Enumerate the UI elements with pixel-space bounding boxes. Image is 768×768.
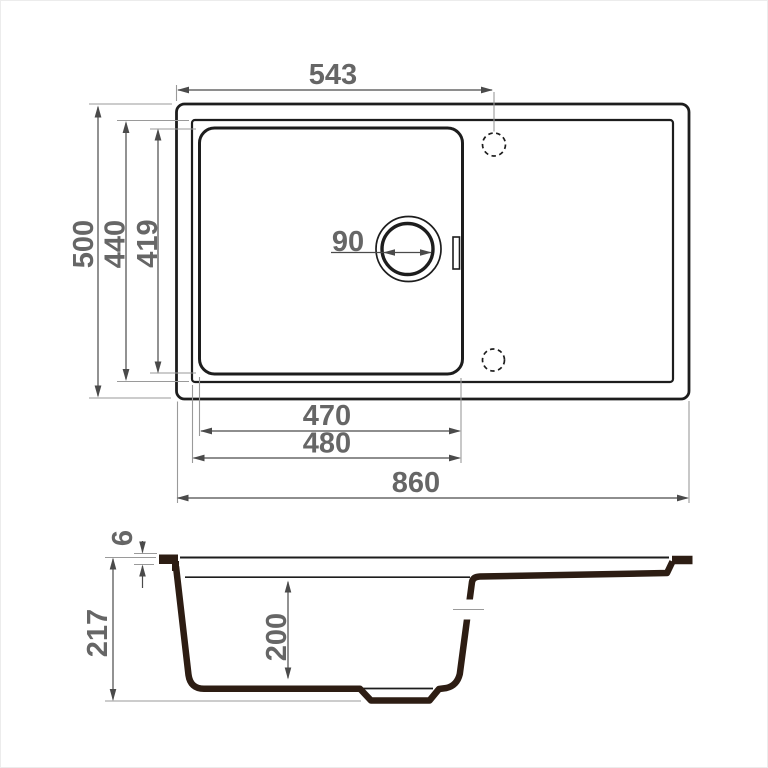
arrow bbox=[193, 455, 205, 462]
dim-label: 543 bbox=[309, 59, 357, 91]
arrow bbox=[155, 129, 162, 141]
dim-label: 90 bbox=[332, 226, 364, 258]
arrow bbox=[285, 668, 292, 680]
dim-bowl-depth: 200 bbox=[261, 581, 293, 680]
arrow bbox=[285, 581, 292, 593]
dim-label: 480 bbox=[303, 428, 351, 460]
arrow bbox=[123, 121, 130, 133]
arrow bbox=[481, 87, 493, 94]
dim-label: 217 bbox=[82, 609, 114, 657]
dim-bowl-depth-plan: 419 bbox=[132, 129, 196, 374]
arrow bbox=[420, 249, 432, 256]
dim-overall-height: 217 bbox=[82, 558, 361, 702]
dim-label: 419 bbox=[132, 219, 164, 267]
section-view: 6 217 200 bbox=[82, 530, 693, 701]
tap-hole-top-icon bbox=[483, 133, 506, 156]
arrow bbox=[200, 428, 212, 435]
dim-label: 860 bbox=[392, 467, 440, 499]
section-profile bbox=[176, 562, 673, 701]
arrow bbox=[95, 386, 102, 398]
arrow bbox=[139, 542, 146, 554]
dim-rim-thickness: 6 bbox=[107, 530, 157, 588]
overflow-notch bbox=[453, 237, 460, 269]
drain-inner-circle bbox=[382, 224, 433, 275]
plan-view: 543 500 440 419 bbox=[68, 59, 689, 503]
arrow bbox=[110, 558, 117, 570]
arrow bbox=[155, 362, 162, 374]
arrow bbox=[177, 87, 189, 94]
technical-drawing: 543 500 440 419 bbox=[0, 0, 768, 768]
dim-label: 200 bbox=[261, 613, 293, 661]
arrow bbox=[177, 495, 189, 502]
arrow bbox=[677, 495, 689, 502]
arrow bbox=[449, 428, 461, 435]
arrow bbox=[110, 689, 117, 701]
tap-hole-bottom-icon bbox=[483, 349, 505, 371]
drain-outer-circle bbox=[376, 217, 441, 282]
arrow bbox=[383, 249, 395, 256]
arrow bbox=[123, 369, 130, 381]
dim-label: 440 bbox=[100, 220, 132, 268]
arrow bbox=[95, 106, 102, 118]
dim-label: 6 bbox=[107, 530, 139, 546]
arrow bbox=[139, 565, 146, 577]
arrow bbox=[449, 455, 461, 462]
sink-drawing-svg: 543 500 440 419 bbox=[1, 1, 767, 767]
dim-label: 500 bbox=[68, 220, 100, 268]
dim-overall-width: 860 bbox=[177, 401, 690, 503]
